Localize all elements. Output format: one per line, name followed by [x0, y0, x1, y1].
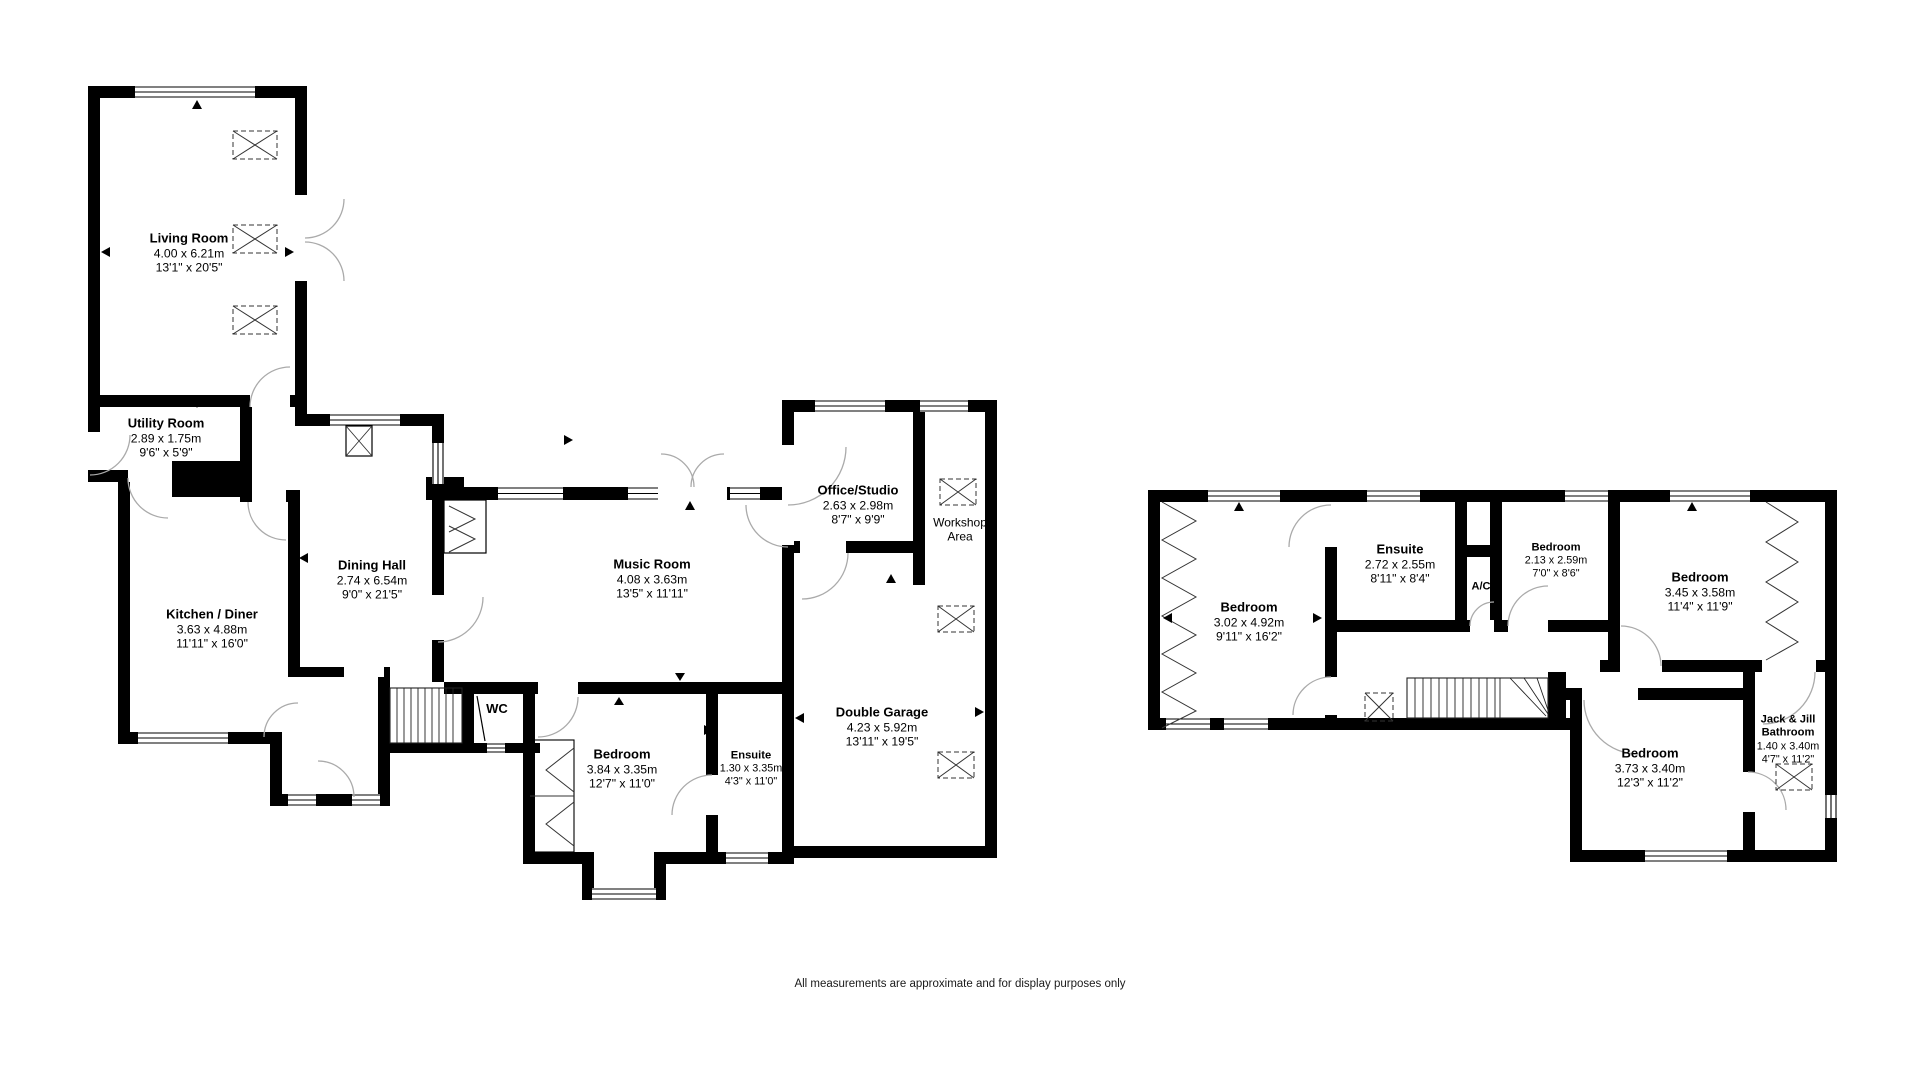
room-label-bedroom-first-bottom: Bedroom 3.73 x 3.40m 12'3" x 11'2"	[1615, 746, 1685, 791]
room-label-jack-and-jill-bathroom: Jack & Jill Bathroom 1.40 x 3.40m 4'7" x…	[1749, 714, 1827, 767]
room-label-bedroom-ground: Bedroom 3.84 x 3.35m 12'7" x 11'0"	[587, 747, 657, 792]
floorplan-page: Living Room 4.00 x 6.21m 13'1" x 20'5" U…	[0, 0, 1920, 1080]
room-label-utility-room: Utility Room 2.89 x 1.75m 9'6" x 5'9"	[128, 416, 205, 461]
wc-door-leaf	[477, 696, 485, 741]
measurements-disclaimer: All measurements are approximate and for…	[794, 978, 1125, 990]
room-label-ensuite-first: Ensuite 2.72 x 2.55m 8'11" x 8'4"	[1365, 542, 1435, 587]
wardrobe-icons	[530, 502, 1798, 852]
room-label-dining-hall: Dining Hall 2.74 x 6.54m 9'0" x 21'5"	[337, 558, 407, 603]
ground-floor-stairs	[390, 688, 462, 743]
room-label-workshop-area: Workshop Area	[920, 516, 1000, 545]
room-label-double-garage: Double Garage 4.23 x 5.92m 13'11" x 19'5…	[836, 705, 928, 750]
room-label-ensuite-ground: Ensuite 1.30 x 3.35m 4'3" x 11'0"	[720, 749, 782, 788]
room-label-bedroom-first-right: Bedroom 3.45 x 3.58m 11'4" x 11'9"	[1665, 570, 1735, 615]
first-floor-walls	[1148, 490, 1837, 862]
room-label-kitchen-diner: Kitchen / Diner 3.63 x 4.88m 11'11" x 16…	[166, 607, 258, 652]
room-label-wc: WC	[486, 701, 508, 717]
room-label-ac: A/C	[1472, 580, 1491, 593]
first-floor-stairs	[1407, 678, 1548, 718]
room-label-music-room: Music Room 4.08 x 3.63m 13'5" x 11'11"	[613, 557, 690, 602]
room-label-office-studio: Office/Studio 2.63 x 2.98m 8'7" x 9'9"	[818, 483, 899, 528]
room-label-bedroom-first-left: Bedroom 3.02 x 4.92m 9'11" x 16'2"	[1214, 600, 1284, 645]
room-label-living-room: Living Room 4.00 x 6.21m 13'1" x 20'5"	[150, 231, 229, 276]
room-label-bedroom-first-small: Bedroom 2.13 x 2.59m 7'0" x 8'6"	[1525, 541, 1587, 580]
